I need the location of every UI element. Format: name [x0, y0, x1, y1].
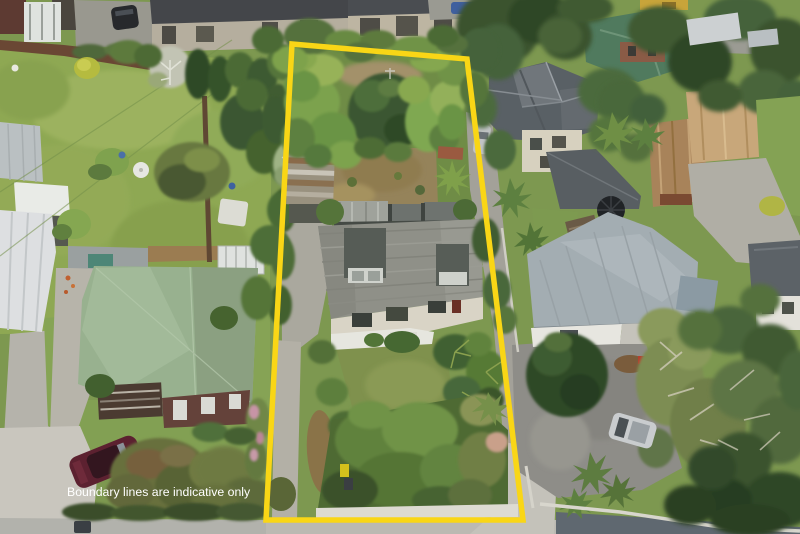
svg-text:Boundary lines are indicative: Boundary lines are indicative only: [67, 485, 251, 499]
